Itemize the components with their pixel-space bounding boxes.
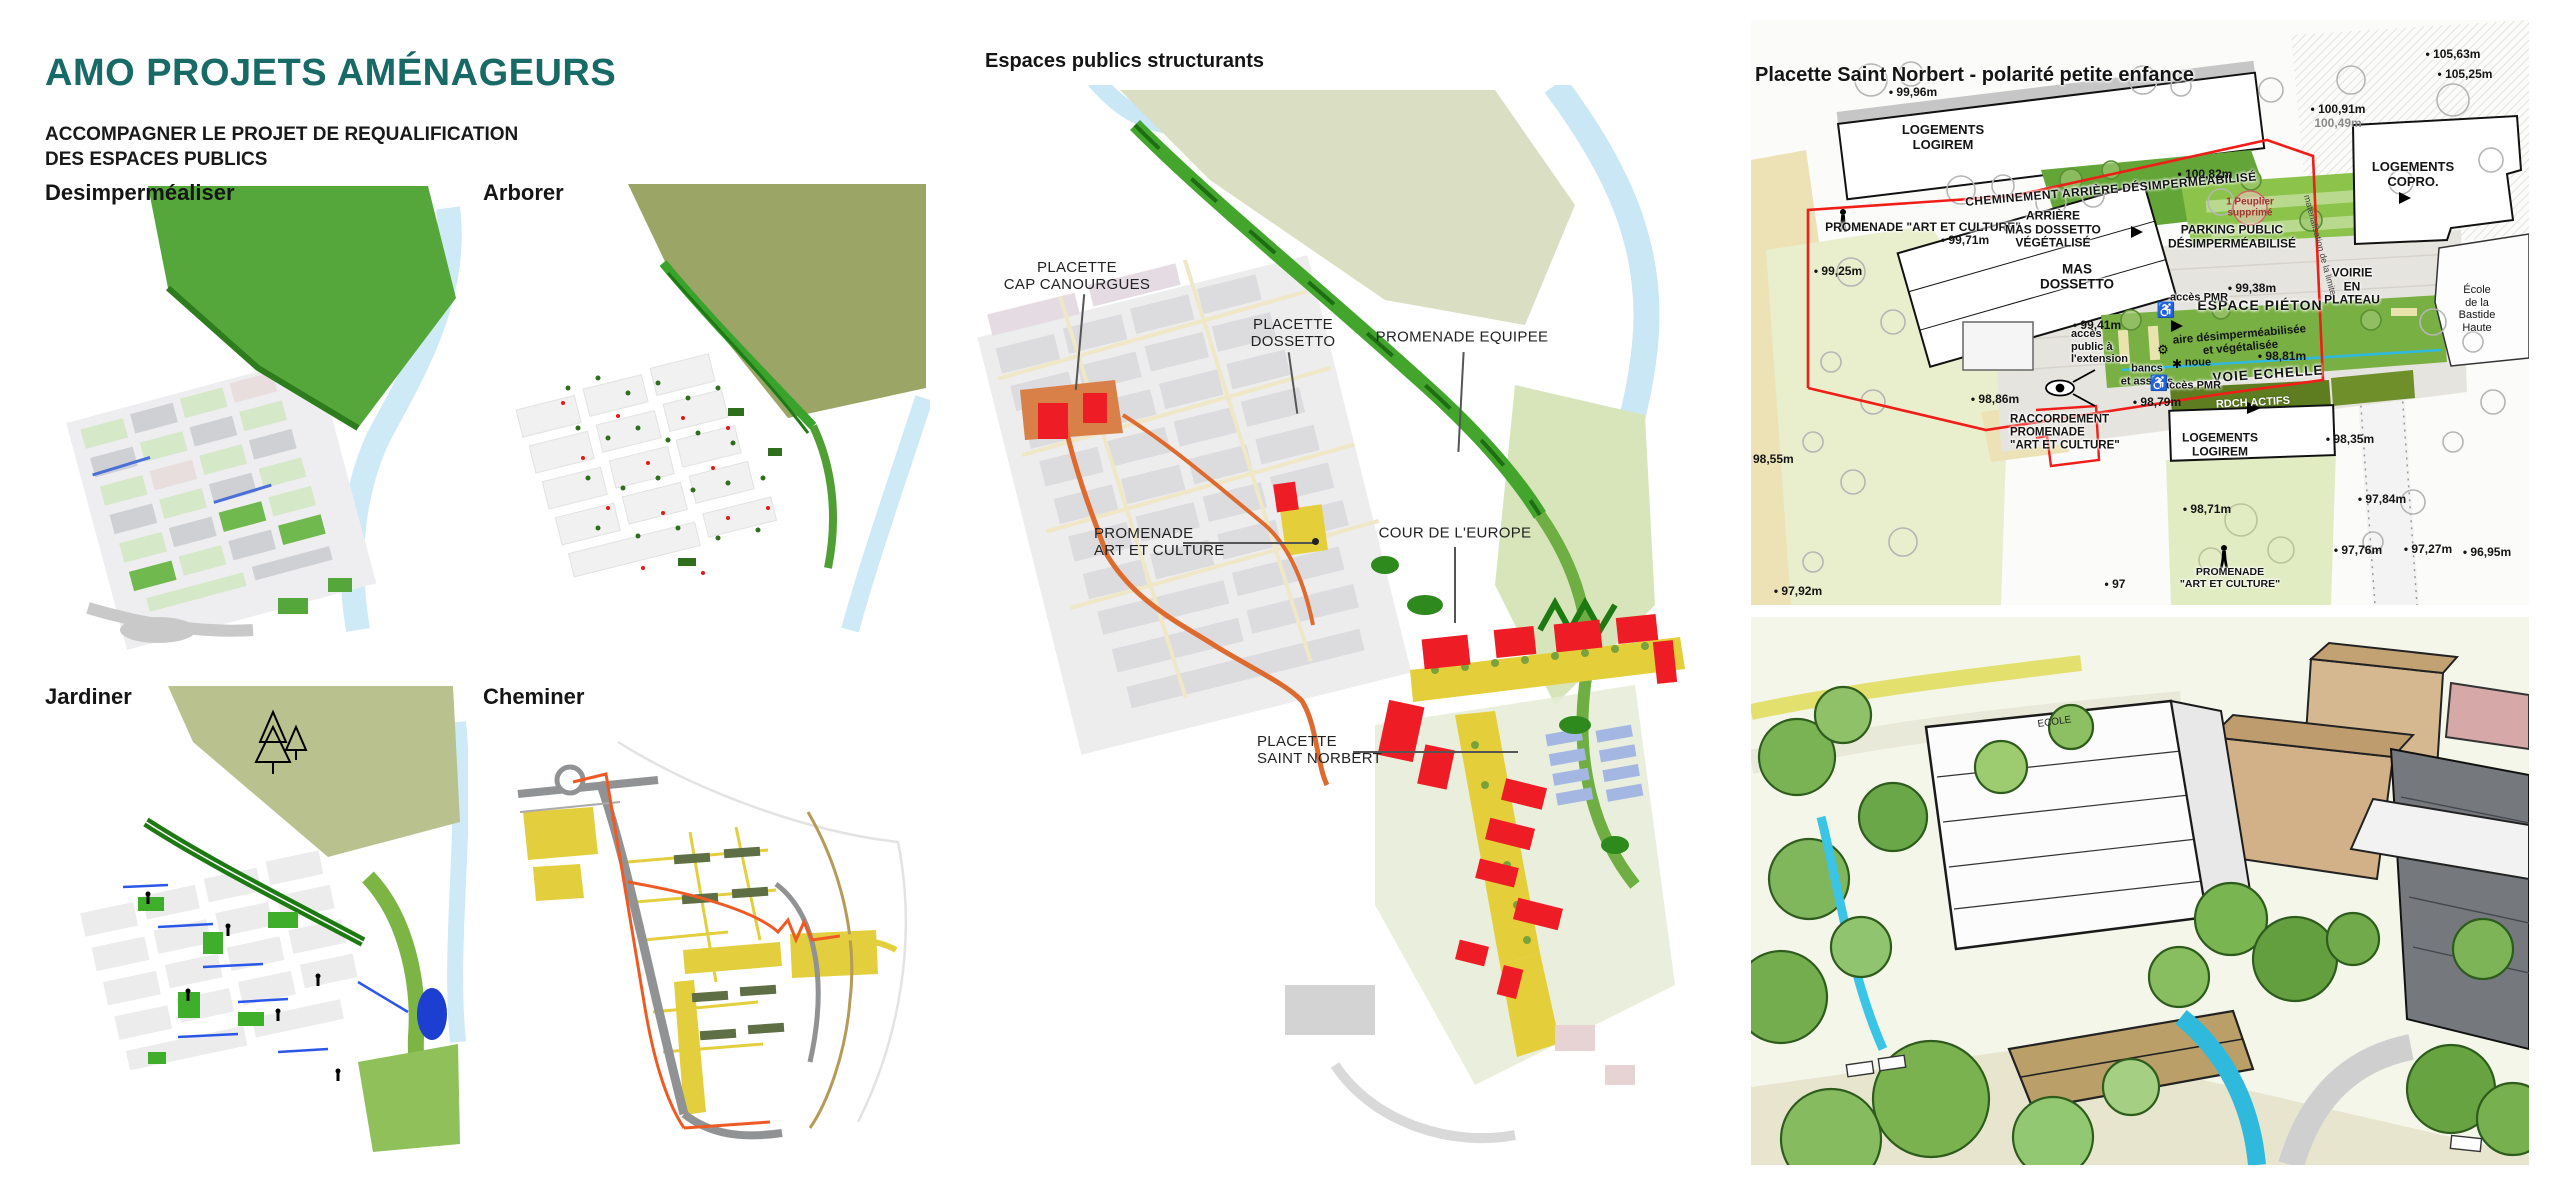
- building-label-copro: LOGEMENTS COPRO.: [2372, 160, 2454, 190]
- area-label-acces-pmr-upper: accès PMR: [2170, 292, 2228, 305]
- flower-icon: ✱: [2172, 357, 2182, 371]
- elevation-label: • 99,38m: [2228, 282, 2276, 296]
- elevation-label: • 98,79m: [2133, 396, 2181, 410]
- gear-icon: ⚙: [2157, 342, 2169, 358]
- leader-line: [1183, 542, 1315, 544]
- building-label-logirem-top: LOGEMENTS LOGIREM: [1902, 123, 1984, 153]
- elevation-label: • 97,84m: [2358, 493, 2406, 507]
- mini-map-jardiner: Jardiner: [28, 682, 468, 1160]
- area-label-raccordement: RACCORDEMENT PROMENADE "ART ET CULTURE": [2010, 413, 2120, 452]
- area-label-promenade-top: PROMENADE "ART ET CULTURE": [1825, 221, 2021, 235]
- mini-map-desimpermealiser: Desimperméaliser: [28, 178, 468, 656]
- right-panel: Placette Saint Norbert - polarité petite…: [1751, 20, 2529, 1170]
- area-label-parking: PARKING PUBLIC DÉSIMPERMÉABILISÉ: [2168, 223, 2296, 250]
- central-map-title: Espaces publics structurants: [985, 50, 1264, 73]
- elevation-label: • 96,95m: [2463, 546, 2511, 560]
- elevation-label: • 98,81m: [2258, 350, 2306, 364]
- mini-map-label: Jardiner: [45, 684, 132, 710]
- area-label-noue: noue: [2185, 357, 2211, 370]
- wheelchair-icon: ♿: [2150, 374, 2169, 392]
- mini-map-cheminer: Cheminer: [478, 682, 930, 1160]
- annotation-placette-saint-norbert: PLACETTE SAINT NORBERT: [1257, 733, 1382, 767]
- perspective-view-image: ECOLE: [1751, 617, 2529, 1165]
- area-label-promenade-bottom: PROMENADE "ART ET CULTURE": [2180, 567, 2280, 591]
- detail-plan-title: Placette Saint Norbert - polarité petite…: [1755, 64, 2194, 87]
- leader-line: [1454, 547, 1456, 623]
- central-map-image: [955, 85, 1750, 1192]
- elevation-label: • 98,86m: [1971, 393, 2019, 407]
- annotation-cour-europe: COUR DE L'EUROPE: [1379, 524, 1532, 541]
- elevation-label: • 97,76m: [2334, 544, 2382, 558]
- area-label-arriere-mas: ARRIÈRE MAS DOSSETTO VÉGÉTALISÉ: [2005, 209, 2101, 250]
- presentation-board: AMO PROJETS AMÉNAGEURS ACCOMPAGNER LE PR…: [0, 0, 2560, 1192]
- elevation-label: • 98,35m: [2326, 433, 2374, 447]
- elevation-label: • 99,41m: [2073, 319, 2121, 333]
- building-label-logirem-bottom: LOGEMENTS LOGIREM: [2182, 431, 2258, 458]
- desimpermealiser-map-image: [28, 178, 468, 656]
- jardiner-map-image: [28, 682, 468, 1160]
- area-label-acces-public: accès public à l'extension: [2071, 328, 2128, 366]
- leader-line: [1353, 751, 1518, 753]
- area-label-acces-pmr-lower: accès PMR: [2163, 380, 2221, 393]
- elevation-label: • 99,25m: [1814, 265, 1862, 279]
- elevation-label: • 99,96m: [1889, 86, 1937, 100]
- annotation-placette-cap-canourgues: PLACETTE CAP CANOURGUES: [1004, 259, 1150, 293]
- detail-plan-image: [1751, 20, 2529, 605]
- central-panel: Espaces publics structurants: [955, 0, 1750, 1192]
- elevation-label: • 98,71m: [2183, 503, 2231, 517]
- mini-map-label: Desimperméaliser: [45, 180, 235, 206]
- mini-map-label: Arborer: [483, 180, 564, 206]
- elevation-label: • 105,25m: [2438, 68, 2493, 82]
- elevation-label: 100,49m: [2314, 117, 2361, 131]
- elevation-label: • 97,92m: [1774, 585, 1822, 599]
- page-title: AMO PROJETS AMÉNAGEURS: [45, 52, 616, 95]
- arborer-map-image: [478, 178, 930, 656]
- elevation-label: • 105,63m: [2426, 48, 2481, 62]
- elevation-label: • 97,27m: [2404, 543, 2452, 557]
- annotation-promenade-equipee: PROMENADE EQUIPEE: [1376, 328, 1549, 345]
- elevation-label: • 100,91m: [2311, 103, 2366, 117]
- elevation-label: 98,55m: [1753, 453, 1794, 467]
- annotation-placette-dossetto: PLACETTE DOSSETTO: [1251, 316, 1336, 350]
- leader-dot: [1312, 538, 1319, 545]
- page-subtitle: ACCOMPAGNER LE PROJET DE REQUALIFICATION…: [45, 122, 518, 172]
- mini-map-arborer: Arborer: [478, 178, 930, 656]
- elevation-label: • 97: [2105, 578, 2126, 592]
- elevation-label: • 99,71m: [1941, 234, 1989, 248]
- elevation-label: • 100,82m: [2178, 168, 2233, 182]
- wheelchair-icon: ♿: [2157, 301, 2176, 319]
- left-panel: AMO PROJETS AMÉNAGEURS ACCOMPAGNER LE PR…: [0, 0, 955, 1192]
- building-label-ecole: École de la Bastide Haute: [2451, 284, 2503, 334]
- building-label-mas-dossetto: MAS DOSSETTO: [2040, 262, 2114, 293]
- cheminer-map-image: [478, 682, 930, 1160]
- mini-map-label: Cheminer: [483, 684, 584, 710]
- area-label-peuplier: 1 Peuplier supprimé: [2226, 197, 2274, 220]
